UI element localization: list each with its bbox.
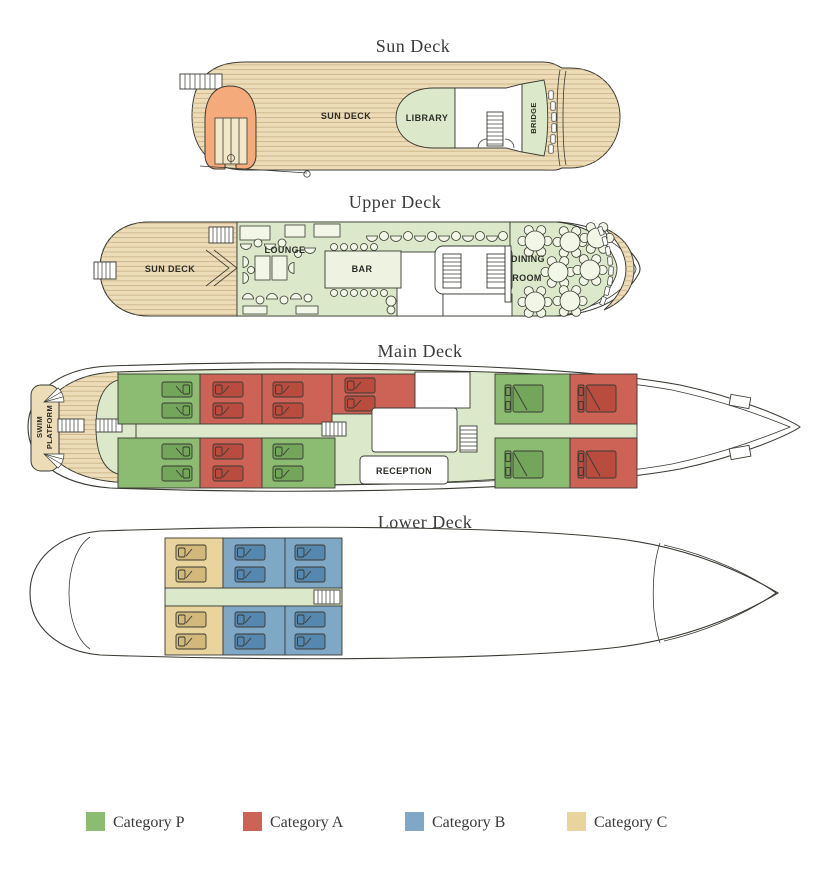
bed-icon	[176, 545, 206, 560]
table-icon	[248, 267, 255, 274]
swim-platform-label-line2: PLATFORM	[45, 405, 54, 449]
barstool-icon	[341, 244, 348, 251]
bed-icon	[176, 612, 206, 627]
table-icon	[304, 294, 312, 302]
table-icon	[280, 296, 288, 304]
bed-icon	[235, 545, 265, 560]
double-bed-icon	[578, 451, 616, 478]
bed-icon	[295, 567, 325, 582]
sun-deck-title: Sun Deck	[376, 36, 451, 56]
deck-plan-page: Sun Deck SUN DECK LIBRARY BRIDGE	[0, 0, 826, 878]
bed-icon	[176, 634, 206, 649]
table-icon	[428, 232, 437, 241]
library-label: LIBRARY	[406, 113, 448, 123]
table-icon	[240, 226, 270, 240]
legend-label: Category B	[432, 814, 505, 831]
gangway-ladder-icon	[94, 262, 116, 279]
legend-swatch	[405, 812, 424, 831]
legend-swatch	[86, 812, 105, 831]
barstool-icon	[361, 290, 368, 297]
bed-icon	[235, 612, 265, 627]
bed-icon	[162, 382, 192, 397]
gangway-ladder-icon	[209, 227, 233, 243]
bed-icon	[295, 612, 325, 627]
upper-deck-section: Upper Deck SUN DECK	[94, 192, 640, 317]
barstool-icon	[381, 290, 388, 297]
lounge-label: LOUNGE	[265, 245, 306, 255]
barstool-icon	[361, 244, 368, 251]
double-bed-icon	[505, 385, 543, 412]
table-icon	[314, 224, 340, 237]
legend-swatch	[243, 812, 262, 831]
staircase-icon	[460, 426, 477, 452]
legend-label: Category A	[270, 814, 344, 831]
lower-deck-hull	[30, 527, 778, 658]
bed-icon	[213, 466, 243, 481]
sun-deck-area-label: SUN DECK	[321, 111, 371, 121]
barstool-icon	[351, 244, 358, 251]
bed-icon	[213, 382, 243, 397]
barstool-icon	[351, 290, 358, 297]
gangway-ladder-icon	[322, 422, 346, 436]
bed-icon	[162, 466, 192, 481]
gangway-ladder-icon	[180, 74, 222, 89]
table-icon	[254, 239, 262, 247]
staircase-icon	[443, 254, 461, 288]
lower-deck-section: Lower Deck	[30, 512, 778, 659]
bed-icon	[273, 466, 303, 481]
bed-icon	[345, 396, 375, 411]
ship-deck-plan: Sun Deck SUN DECK LIBRARY BRIDGE	[0, 0, 826, 878]
bridge-label: BRIDGE	[529, 102, 538, 134]
main-deck-section: Main Deck SWIM PLATFORM	[28, 341, 800, 491]
bed-icon	[176, 567, 206, 582]
upper-sun-deck-label: SUN DECK	[145, 264, 195, 274]
table-icon	[476, 232, 485, 241]
legend-label: Category P	[113, 814, 185, 831]
bed-icon	[273, 382, 303, 397]
table-icon	[499, 232, 508, 241]
barstool-icon	[331, 290, 338, 297]
table-icon	[243, 306, 267, 314]
bed-icon	[213, 403, 243, 418]
staircase-icon	[487, 254, 505, 288]
legend-label: Category C	[594, 814, 667, 831]
gangway-ladder-icon	[58, 419, 84, 432]
bed-icon	[162, 444, 192, 459]
barstool-icon	[341, 290, 348, 297]
barstool-icon	[371, 290, 378, 297]
superstructure-void	[372, 408, 457, 452]
bed-icon	[295, 545, 325, 560]
dining-room-label-line1: DINING	[511, 254, 545, 264]
upper-deck-title: Upper Deck	[349, 192, 441, 212]
staircase-icon	[487, 112, 503, 146]
sun-deck-section: Sun Deck SUN DECK LIBRARY BRIDGE	[180, 36, 620, 177]
corridor-void	[443, 294, 512, 316]
double-bed-icon	[505, 451, 543, 478]
bar-label: BAR	[352, 264, 373, 274]
table-icon	[255, 256, 270, 280]
bed-icon	[235, 634, 265, 649]
table-icon	[256, 296, 264, 304]
legend: Category P Category A Category B Categor…	[86, 812, 667, 831]
boom-end	[304, 171, 310, 177]
table-icon	[386, 296, 396, 306]
table-icon	[387, 306, 395, 314]
bed-icon	[273, 444, 303, 459]
bed-icon	[235, 567, 265, 582]
table-icon	[452, 232, 461, 241]
swim-platform-label-line1: SWIM	[35, 416, 44, 438]
double-bed-icon	[578, 385, 616, 412]
barstool-icon	[371, 244, 378, 251]
bed-icon	[345, 378, 375, 393]
table-icon	[285, 225, 305, 237]
bed-icon	[162, 403, 192, 418]
main-deck-title: Main Deck	[378, 341, 463, 361]
superstructure-void	[415, 372, 470, 408]
dining-room-label-line2: ROOM	[512, 273, 542, 283]
reception-label: RECEPTION	[376, 466, 432, 476]
bed-icon	[213, 444, 243, 459]
bed-icon	[295, 634, 325, 649]
table-icon	[296, 306, 318, 314]
table-icon	[404, 232, 413, 241]
barstool-icon	[331, 244, 338, 251]
legend-swatch	[567, 812, 586, 831]
table-icon	[272, 256, 287, 280]
bed-icon	[273, 403, 303, 418]
staircase-icon	[314, 590, 340, 604]
table-icon	[380, 232, 389, 241]
